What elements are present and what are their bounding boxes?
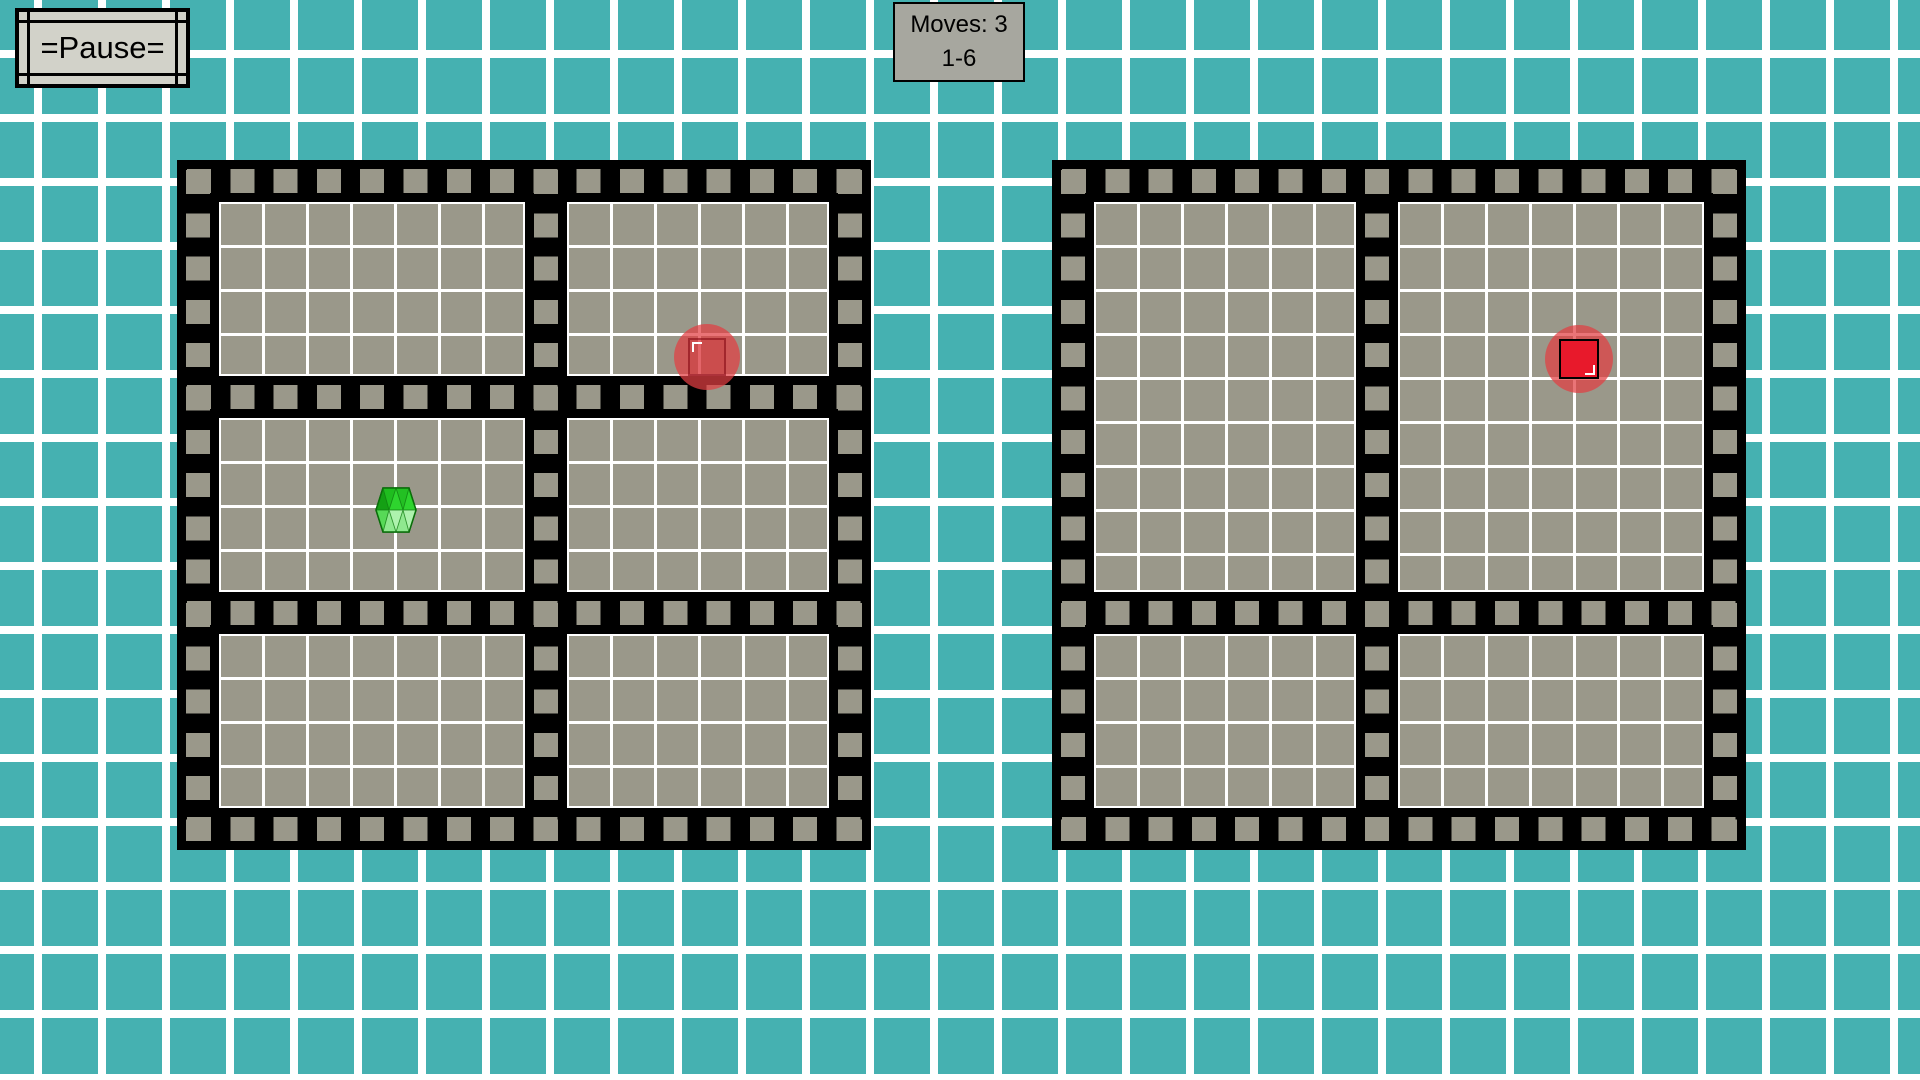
pause-frame-line bbox=[19, 20, 186, 23]
film-sprockets-left bbox=[1061, 170, 1085, 841]
film-sprockets-bottom bbox=[1062, 817, 1736, 841]
grid-panel-middle-right bbox=[567, 418, 829, 592]
red-square-piece[interactable] bbox=[1545, 325, 1613, 393]
red-ghost-target[interactable] bbox=[674, 324, 740, 390]
grid-panel-bottom-left bbox=[1094, 634, 1356, 808]
green-gem-piece[interactable] bbox=[375, 487, 417, 533]
film-sprockets-top bbox=[187, 169, 861, 193]
moves-counter: Moves: 3 1-6 bbox=[893, 2, 1025, 82]
green-gem-icon bbox=[375, 487, 417, 533]
game-background: { "ui": { "pause_label": "=Pause=", "mov… bbox=[0, 0, 1920, 1080]
grid-panel-bottom-right bbox=[567, 634, 829, 808]
film-sprockets-right bbox=[1713, 170, 1737, 841]
corner-mark-icon bbox=[1585, 365, 1595, 375]
moves-range: 1-6 bbox=[942, 42, 977, 76]
pause-frame-line bbox=[19, 73, 186, 76]
ghost-square-outline bbox=[688, 338, 726, 376]
grid-panel-middle-left bbox=[219, 418, 525, 592]
film-sprockets-divider bbox=[187, 385, 861, 409]
film-sprockets-divider bbox=[534, 170, 558, 841]
pause-frame-line bbox=[27, 12, 30, 84]
film-sprockets-top bbox=[1062, 169, 1736, 193]
grid-panel-top-left bbox=[219, 202, 525, 376]
corner-mark-icon bbox=[692, 342, 702, 352]
film-sprockets-divider bbox=[1062, 601, 1736, 625]
pause-button[interactable]: =Pause= bbox=[15, 8, 190, 88]
grid-panel-bottom-right bbox=[1398, 634, 1704, 808]
grid-panel-top-left bbox=[1094, 202, 1356, 592]
film-sprockets-bottom bbox=[187, 817, 861, 841]
film-sprockets-right bbox=[838, 170, 862, 841]
puzzle-board-right bbox=[1052, 160, 1746, 850]
film-sprockets-divider bbox=[1365, 170, 1389, 841]
pause-label: =Pause= bbox=[40, 30, 164, 66]
red-square bbox=[1559, 339, 1599, 379]
film-sprockets-left bbox=[186, 170, 210, 841]
grid-panel-top-right bbox=[1398, 202, 1704, 592]
film-sprockets-divider bbox=[187, 601, 861, 625]
moves-count: Moves: 3 bbox=[910, 8, 1007, 42]
grid-panel-bottom-left bbox=[219, 634, 525, 808]
puzzle-board-left bbox=[177, 160, 871, 850]
pause-frame-line bbox=[175, 12, 178, 84]
